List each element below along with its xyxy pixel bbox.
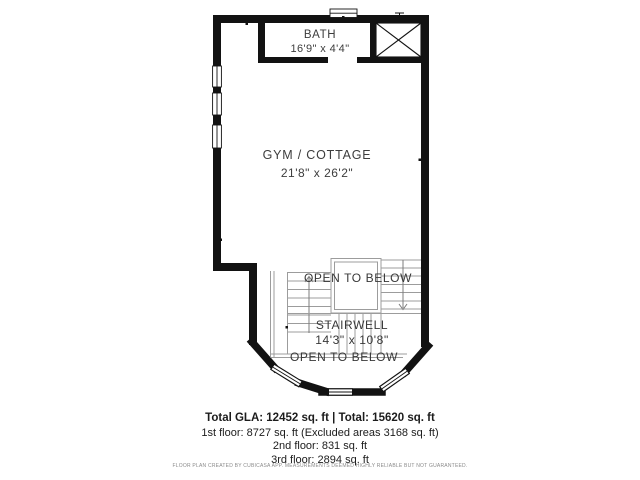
tick-mark <box>246 23 249 26</box>
stairwell-dimensions: 14'3" x 10'8" <box>315 333 389 347</box>
wall-shaft-left <box>370 23 376 57</box>
left-wall-windows <box>213 66 222 148</box>
area-summary: Total GLA: 12452 sq. ft | Total: 15620 s… <box>0 413 640 468</box>
wall-step-vertical <box>249 263 257 345</box>
wall-top <box>213 15 429 23</box>
open-to-below-bottom-label: OPEN TO BELOW <box>290 350 398 364</box>
bay-wall-right-upper <box>405 346 428 372</box>
window <box>213 93 222 115</box>
tick-mark <box>220 239 223 242</box>
walls <box>213 15 429 347</box>
gym-cottage-dimensions: 21'8" x 26'2" <box>281 166 353 180</box>
second-floor-line: 2nd floor: 831 sq. ft <box>0 441 640 452</box>
bay-window-right <box>381 371 408 390</box>
stairwell-label: STAIRWELL <box>316 318 388 332</box>
window <box>213 125 222 148</box>
floor-plan-drawing: BATH 16'9" x 4'4" GYM / COTTAGE 21'8" x … <box>0 0 640 410</box>
floor-plan: BATH 16'9" x 4'4" GYM / COTTAGE 21'8" x … <box>0 0 640 410</box>
bay-window-left <box>272 367 301 385</box>
wall-right <box>421 15 429 347</box>
stairwell-opening <box>331 259 381 314</box>
bath-label: BATH <box>304 29 336 41</box>
tick-mark <box>286 326 289 329</box>
bay-wall-left-upper <box>252 342 275 368</box>
wall-bath-bottom-right <box>357 57 429 63</box>
tick-mark <box>342 16 345 19</box>
bath-dimensions: 16'9" x 4'4" <box>290 43 349 55</box>
open-to-below-top-label: OPEN TO BELOW <box>304 271 412 285</box>
wall-bath-bottom-left <box>258 57 328 63</box>
floorplan-page: { "plan": { "bath_label": "BATH", "bath_… <box>0 0 640 480</box>
tick-mark <box>419 159 422 162</box>
bay-windows <box>272 367 408 393</box>
total-gla-line: Total GLA: 12452 sq. ft | Total: 15620 s… <box>0 413 640 425</box>
gym-cottage-label: GYM / COTTAGE <box>263 148 372 162</box>
disclaimer-text: FLOOR PLAN CREATED BY CUBICASA APP. MEAS… <box>0 463 640 469</box>
first-floor-line: 1st floor: 8727 sq. ft (Excluded areas 3… <box>0 428 640 439</box>
top-wall-window <box>330 9 357 19</box>
window <box>213 66 222 87</box>
